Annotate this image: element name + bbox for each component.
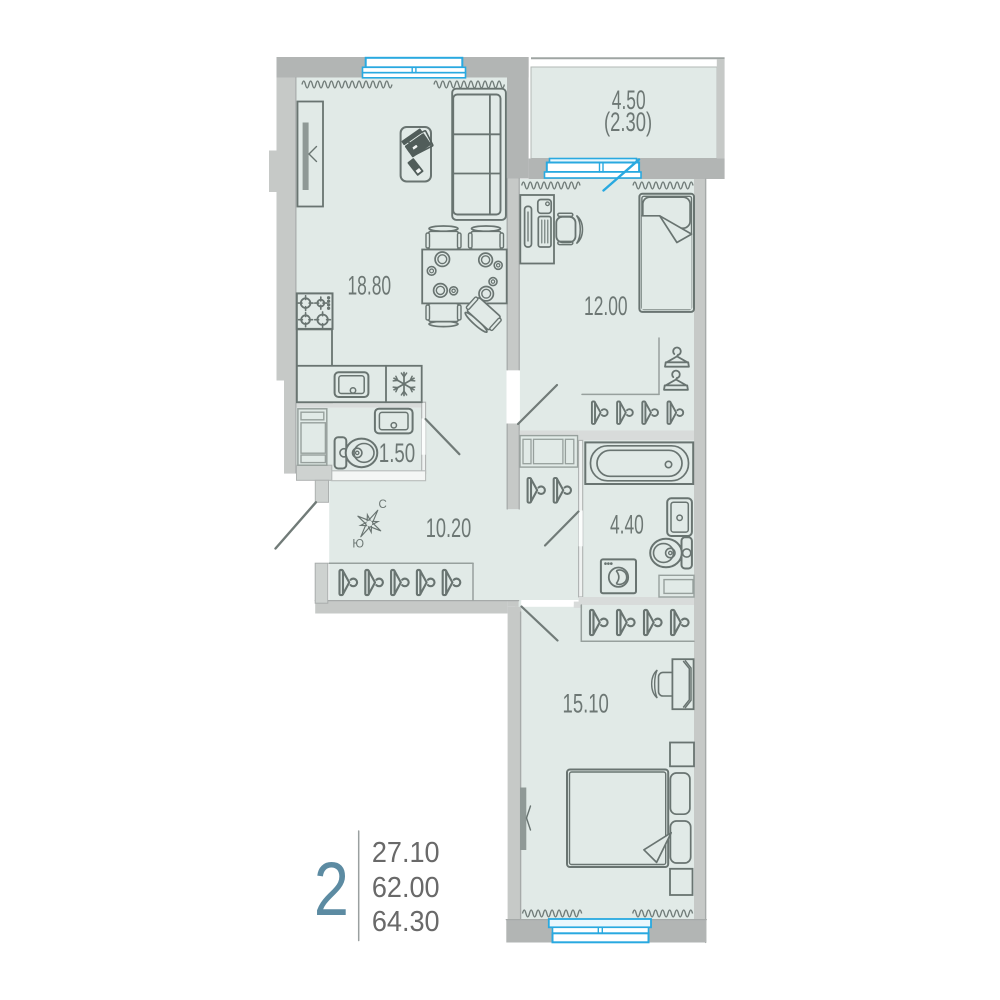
- svg-text:(2.30): (2.30): [604, 107, 652, 137]
- svg-text:1.50: 1.50: [379, 438, 415, 468]
- svg-text:12.00: 12.00: [584, 291, 628, 321]
- svg-text:62.00: 62.00: [372, 872, 440, 904]
- svg-text:2: 2: [314, 847, 349, 932]
- svg-text:27.10: 27.10: [372, 837, 440, 869]
- svg-text:10.20: 10.20: [426, 513, 472, 543]
- svg-text:Ю: Ю: [352, 539, 364, 551]
- svg-text:18.80: 18.80: [347, 271, 391, 301]
- svg-text:4.40: 4.40: [610, 509, 644, 539]
- svg-text:С: С: [379, 499, 387, 511]
- svg-text:64.30: 64.30: [372, 906, 440, 938]
- svg-text:15.10: 15.10: [563, 689, 609, 719]
